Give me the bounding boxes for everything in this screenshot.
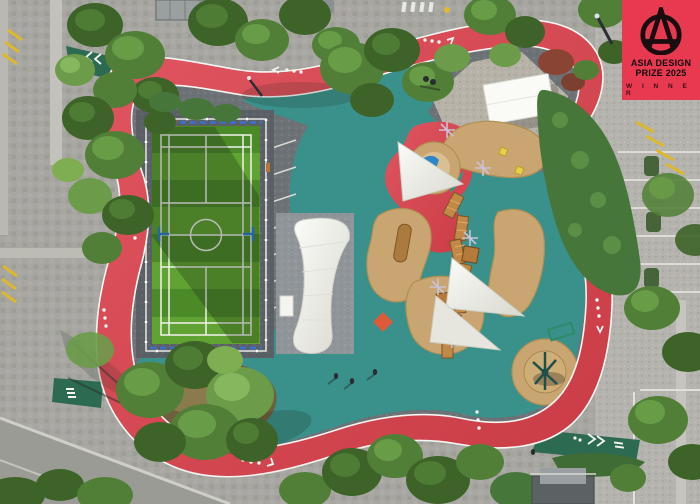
pavilion-kiosk — [280, 296, 293, 316]
badge-line1: ASIA DESIGN — [631, 58, 691, 68]
sports-court — [136, 110, 274, 358]
red-leaf-shrub — [538, 49, 574, 75]
asia-design-prize-badge: ASIA DESIGN PRIZE 2025 W I N N E R — [622, 0, 700, 100]
yellow-dot-marking — [444, 7, 450, 13]
asia-design-prize-a-icon — [638, 7, 684, 55]
aerial-park-photo: ASIA DESIGN PRIZE 2025 W I N N E R — [0, 0, 700, 504]
paving-strip — [50, 0, 62, 165]
utility-building — [530, 468, 596, 504]
pavilion — [276, 213, 354, 354]
paving-strip — [0, 0, 8, 235]
park-scene — [0, 0, 700, 504]
badge-line2: PRIZE 2025 — [635, 68, 686, 78]
badge-winner-label: W I N N E R — [622, 83, 700, 97]
